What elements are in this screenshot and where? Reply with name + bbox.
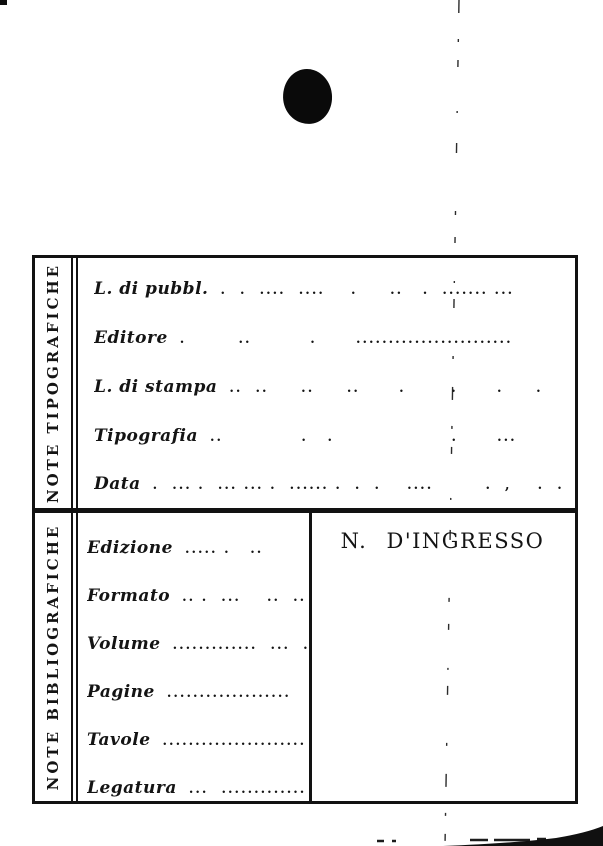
dotted-leader: . ... . ... ... . ...... . . . .... . , … xyxy=(153,478,564,493)
sidebar-bibliografiche: NOTE BIBLIOGRAFICHE xyxy=(35,513,78,801)
sidebar-label-tipografiche: NOTE TIPOGRAFICHE xyxy=(44,263,62,503)
cell-divider-rule xyxy=(309,513,312,801)
dotted-leader: ... ............... xyxy=(189,782,307,797)
dotted-leader: .. . . . ... xyxy=(210,430,517,445)
dotted-leader: ..... . .. . xyxy=(185,542,307,557)
field-label-pagine: Pagine xyxy=(87,682,155,702)
field-row-legatura: Legatura ... ............... xyxy=(87,778,307,802)
field-row-edizione: Edizione ..... . .. . xyxy=(87,538,307,562)
field-row-volume: Volume ............. ... . xyxy=(87,634,307,658)
field-label-volume: Volume xyxy=(87,634,161,654)
dotted-leader: . .. . ........................ xyxy=(180,332,513,347)
field-row-data: Data . ... . ... ... . ...... . . . ....… xyxy=(94,474,566,498)
dotted-leader: . . .... .... . .. . ....... ... xyxy=(220,283,514,298)
ingresso-title: N. D'INGRESSO xyxy=(312,529,573,553)
section-note-tipografiche: NOTE TIPOGRAFICHE L. di pubbl. . . .... … xyxy=(35,258,575,508)
field-label-editore: Editore xyxy=(94,328,168,348)
field-label-formato: Formato xyxy=(87,586,170,606)
field-row-luogo-stampa: L. di stampa .. .. .. .. . . . . . xyxy=(94,377,566,401)
section-note-bibliografiche: NOTE BIBLIOGRAFICHE N. D'INGRESSO Edizio… xyxy=(35,513,575,801)
dotted-leader: ...................... xyxy=(163,734,307,749)
field-row-luogo-pubblicazione: L. di pubbl. . . .... .... . .. . ......… xyxy=(94,279,566,303)
dotted-leader: ................... xyxy=(167,686,291,701)
field-row-pagine: Pagine ................... xyxy=(87,682,307,706)
sidebar-tipografiche: NOTE TIPOGRAFICHE xyxy=(35,258,78,508)
dotted-leader: .. .. .. .. . . . . . xyxy=(229,381,566,396)
field-label-edizione: Edizione xyxy=(87,538,173,558)
field-label-luogo-pubblicazione: L. di pubbl. xyxy=(94,279,208,299)
dotted-leader: ............. ... . xyxy=(173,638,307,653)
page-curl-shadow xyxy=(443,826,603,846)
field-label-tipografia: Tipografia xyxy=(94,426,198,446)
bottom-edge-dashes xyxy=(377,839,546,841)
dotted-leader: .. . ... .. .. ... xyxy=(182,590,307,605)
field-label-legatura: Legatura xyxy=(87,778,177,798)
field-label-luogo-stampa: L. di stampa xyxy=(94,377,217,397)
field-row-formato: Formato .. . ... .. .. ... xyxy=(87,586,307,610)
sidebar-label-bibliografiche: NOTE BIBLIOGRAFICHE xyxy=(44,524,62,791)
catalog-card-table: NOTE TIPOGRAFICHE L. di pubbl. . . .... … xyxy=(32,255,578,804)
field-row-editore: Editore . .. . ........................ xyxy=(94,328,566,352)
field-row-tipografia: Tipografia .. . . . ... xyxy=(94,426,566,450)
scanned-catalog-card-page: NOTE TIPOGRAFICHE L. di pubbl. . . .... … xyxy=(0,0,603,846)
field-label-tavole: Tavole xyxy=(87,730,151,750)
field-label-data: Data xyxy=(94,474,141,494)
field-row-tavole: Tavole ...................... xyxy=(87,730,307,754)
